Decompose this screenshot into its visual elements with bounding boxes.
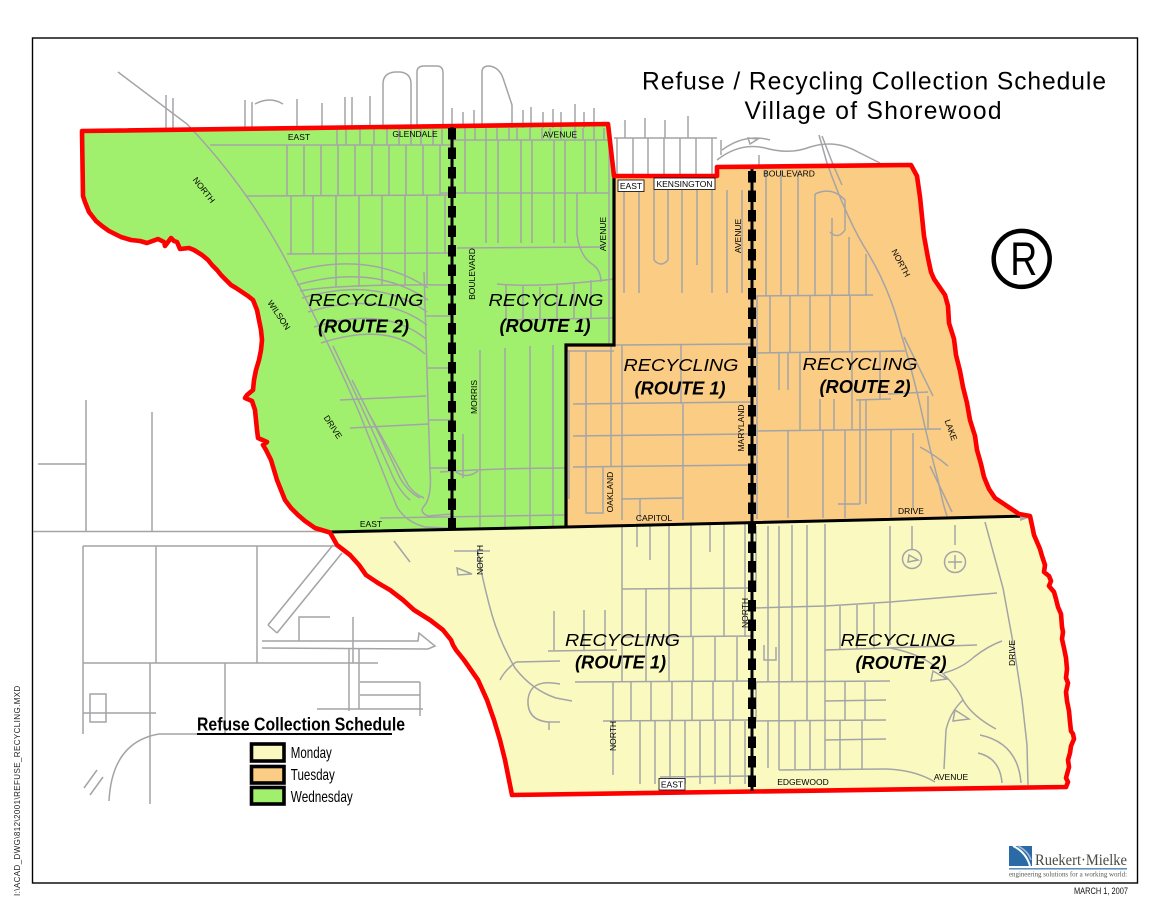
svg-text:Wednesday: Wednesday — [291, 789, 353, 806]
svg-text:MARYLAND: MARYLAND — [736, 404, 746, 451]
svg-text:EDGEWOOD: EDGEWOOD — [777, 777, 828, 787]
svg-text:MARCH 1, 2007: MARCH 1, 2007 — [1074, 886, 1128, 897]
svg-text:EAST: EAST — [620, 181, 642, 191]
svg-text:NORTH: NORTH — [475, 545, 485, 575]
svg-text:Tuesday: Tuesday — [291, 767, 335, 784]
svg-text:Village of Shorewood: Village of Shorewood — [745, 98, 1002, 125]
svg-text:R: R — [1010, 232, 1037, 285]
svg-text:MORRIS: MORRIS — [469, 380, 479, 414]
svg-text:EAST: EAST — [661, 780, 683, 790]
svg-text:I:\ACAD_DWG\812\2001\REFUSE_RE: I:\ACAD_DWG\812\2001\REFUSE_RECYCLING.MX… — [13, 685, 22, 896]
svg-text:(ROUTE 2): (ROUTE 2) — [856, 652, 947, 673]
svg-text:EAST: EAST — [360, 519, 382, 529]
svg-text:RECYCLING: RECYCLING — [489, 290, 604, 310]
svg-text:RECYCLING: RECYCLING — [803, 354, 918, 374]
svg-text:(ROUTE 1): (ROUTE 1) — [500, 315, 591, 336]
svg-text:Ruekert·Mielke: Ruekert·Mielke — [1035, 852, 1127, 869]
svg-text:DRIVE: DRIVE — [1007, 640, 1017, 666]
svg-text:Refuse / Recycling Collection: Refuse / Recycling Collection Schedule — [642, 69, 1106, 96]
svg-text:GLENDALE: GLENDALE — [392, 129, 438, 139]
svg-text:Refuse Collection Schedule: Refuse Collection Schedule — [197, 715, 405, 735]
svg-text:DRIVE: DRIVE — [898, 506, 924, 516]
svg-text:OAKLAND: OAKLAND — [605, 472, 615, 513]
svg-text:AVENUE: AVENUE — [598, 217, 608, 252]
svg-text:engineering solutions for a wo: engineering solutions for a working worl… — [1009, 871, 1127, 879]
svg-text:BOULEVARD: BOULEVARD — [763, 169, 815, 179]
svg-text:KENSINGTON: KENSINGTON — [656, 179, 712, 189]
svg-text:RECYCLING: RECYCLING — [309, 290, 424, 310]
svg-text:RECYCLING: RECYCLING — [624, 355, 739, 375]
svg-text:BOULEVARD: BOULEVARD — [467, 248, 477, 300]
svg-text:CAPITOL: CAPITOL — [636, 513, 672, 523]
svg-text:AVENUE: AVENUE — [543, 130, 578, 140]
svg-text:AVENUE: AVENUE — [934, 772, 969, 782]
svg-text:NORTH: NORTH — [740, 598, 750, 628]
svg-text:EAST: EAST — [288, 132, 310, 142]
svg-text:RECYCLING: RECYCLING — [841, 630, 956, 650]
svg-text:(ROUTE 2): (ROUTE 2) — [318, 316, 409, 337]
svg-text:(ROUTE 1): (ROUTE 1) — [635, 378, 726, 399]
svg-text:Monday: Monday — [291, 745, 332, 762]
svg-text:(ROUTE 2): (ROUTE 2) — [820, 376, 911, 397]
svg-text:NORTH: NORTH — [608, 721, 618, 751]
svg-text:RECYCLING: RECYCLING — [565, 630, 680, 650]
svg-text:AVENUE: AVENUE — [733, 219, 743, 254]
svg-text:(ROUTE 1): (ROUTE 1) — [575, 652, 666, 673]
